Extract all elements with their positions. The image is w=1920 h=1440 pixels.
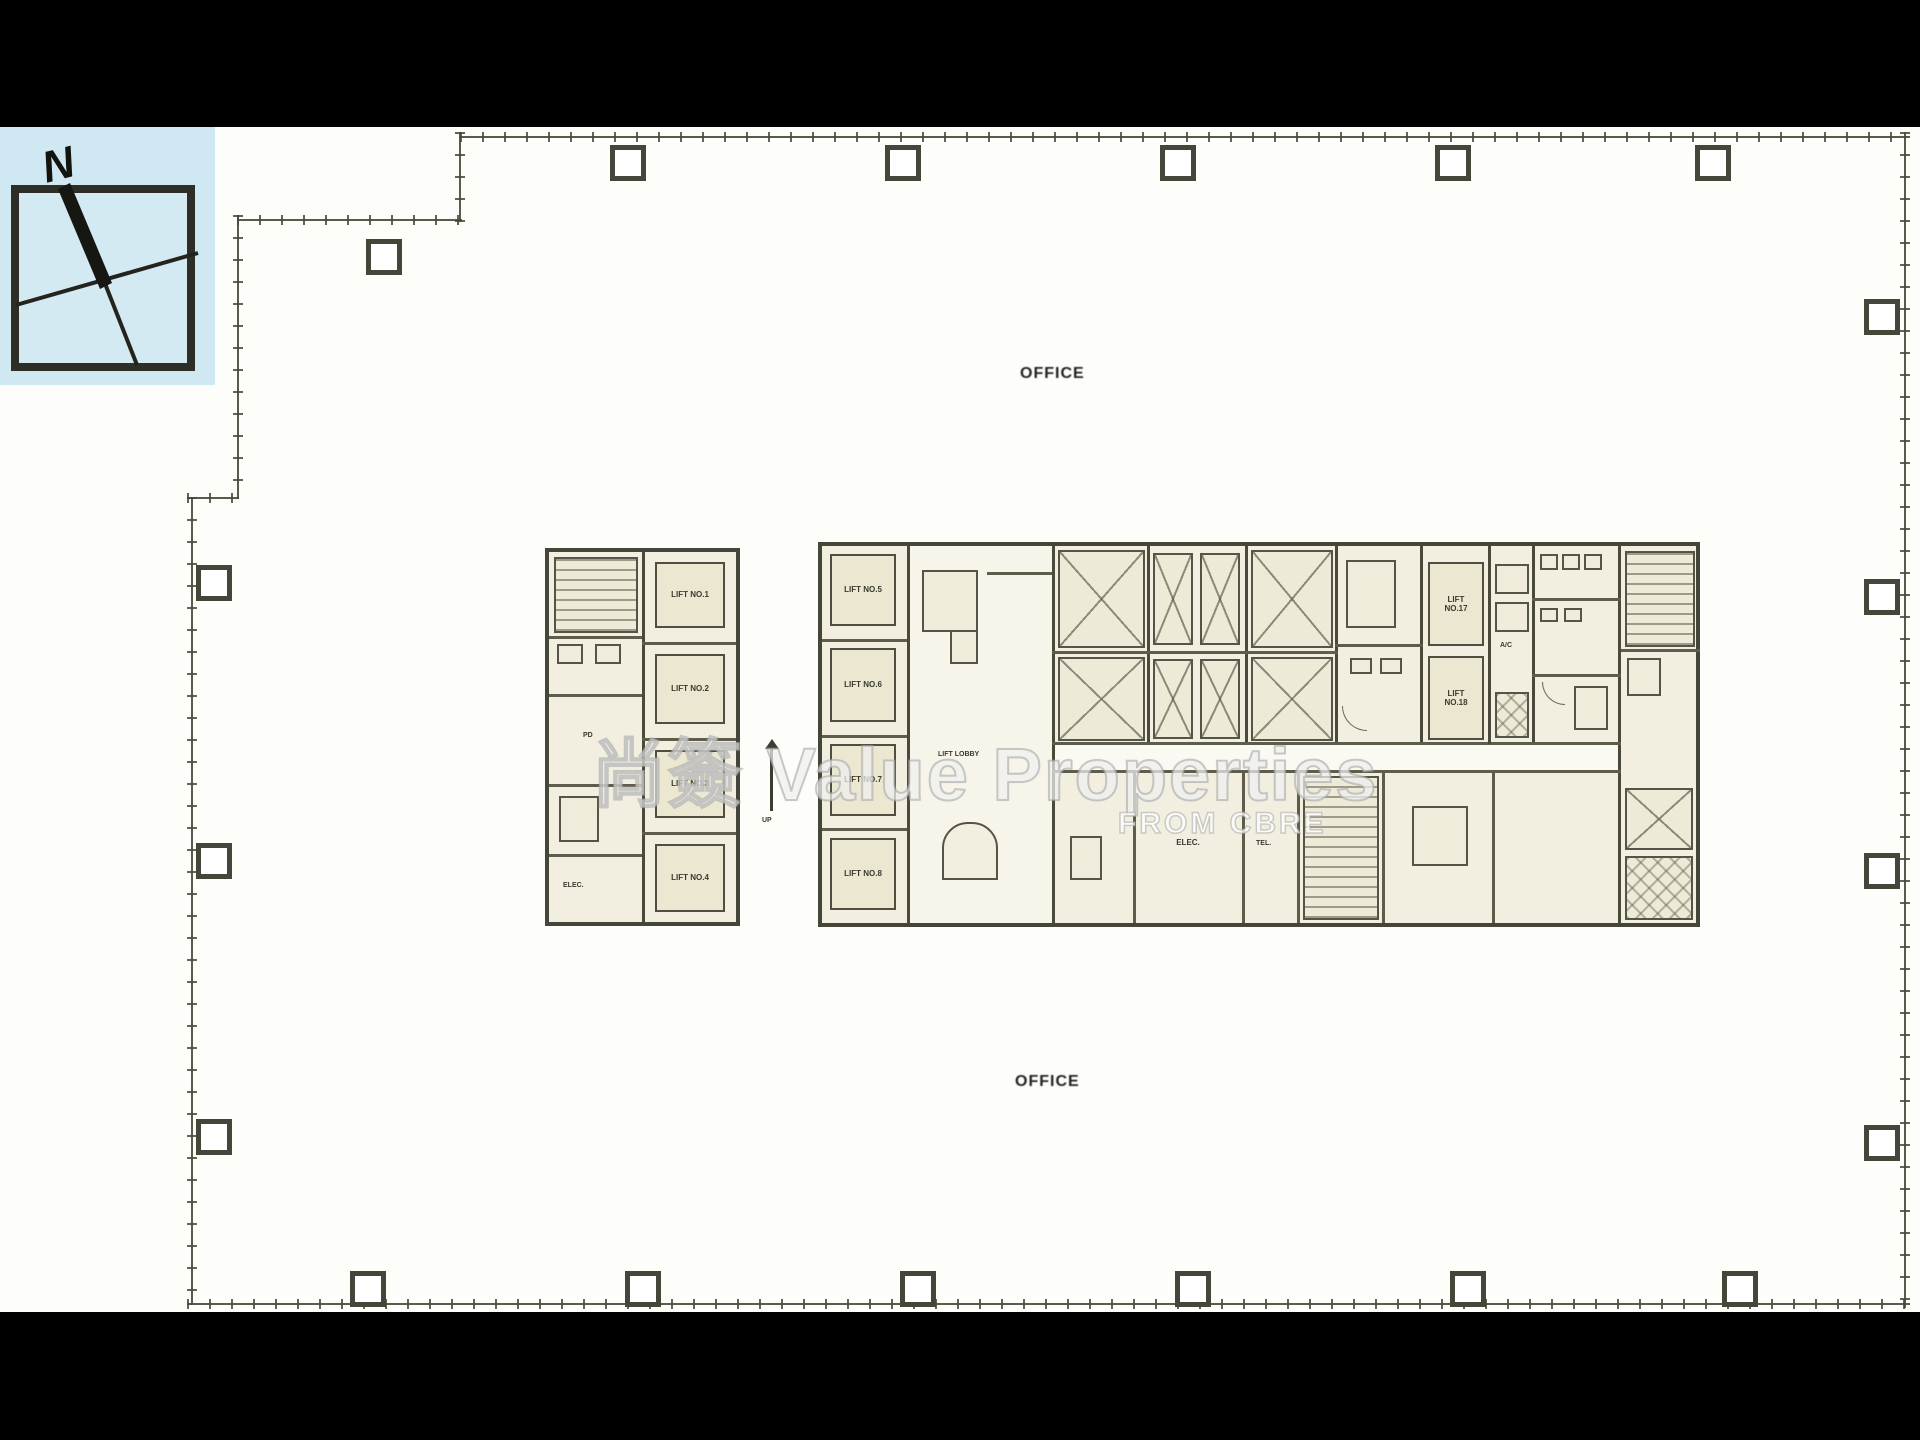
wall (1621, 649, 1700, 652)
wall (549, 636, 642, 639)
column (1175, 1271, 1211, 1307)
wall (987, 572, 1052, 575)
boundary-step-horizontal-2 (187, 493, 239, 503)
toilet-fixture (1584, 554, 1602, 570)
lift-label: LIFT NO.6 (844, 680, 882, 689)
column (196, 1119, 232, 1155)
column (1695, 145, 1731, 181)
boundary-left (187, 497, 197, 1305)
lift-label: LIFT NO.5 (844, 585, 882, 594)
wall (1618, 546, 1621, 923)
service-room (1070, 836, 1102, 880)
lift-label: LIFT NO.17 (1436, 595, 1476, 613)
watermark-title: 尚簽 Value Properties (592, 715, 1379, 822)
wall (822, 828, 907, 831)
wall (1245, 651, 1338, 654)
tel-room-label: TEL. (1256, 840, 1271, 848)
closet (942, 822, 998, 880)
column (350, 1271, 386, 1307)
elec-room-label: ELEC. (563, 882, 584, 890)
boundary-step-horizontal-1 (237, 215, 462, 225)
duct-shaft (1495, 692, 1529, 738)
boundary-bottom (187, 1299, 1910, 1309)
lift-shaft: LIFT NO.17 (1428, 562, 1484, 646)
duct-room (1495, 564, 1529, 594)
wall (642, 832, 736, 835)
wall (822, 639, 907, 642)
duct-shaft (1625, 788, 1693, 850)
wall (1052, 651, 1150, 654)
boundary-right (1900, 132, 1910, 1308)
toilet-fixture (595, 644, 621, 664)
toilet-stall (1540, 608, 1558, 622)
letterbox-bottom (0, 1312, 1920, 1440)
compass-north-arrow: N (0, 127, 215, 385)
column (625, 1271, 661, 1307)
screenshot-root: { "compass": { "north_label": "N" }, "wa… (0, 0, 1920, 1440)
ahu-box-step (950, 630, 978, 664)
column (1160, 145, 1196, 181)
toilet-room (1574, 686, 1608, 730)
wall (1532, 546, 1535, 744)
boundary-top (460, 132, 1910, 142)
toilet-fixture (557, 644, 583, 664)
wall (1382, 770, 1385, 923)
service-room (1412, 806, 1468, 866)
toilet-fixture (1350, 658, 1372, 674)
lift-label: LIFT NO.8 (844, 869, 882, 878)
wall (1147, 651, 1248, 654)
column (1864, 299, 1900, 335)
lift-label: LIFT NO.4 (671, 873, 709, 882)
wall (1532, 598, 1621, 601)
column (610, 145, 646, 181)
column (196, 565, 232, 601)
boundary-step-vertical-1 (455, 132, 465, 222)
ahu-box (922, 570, 978, 632)
lift-label: LIFT NO.1 (671, 590, 709, 599)
lift-shaft: LIFT NO.18 (1428, 656, 1484, 740)
service-shaft (1153, 553, 1193, 645)
lift-label: LIFT NO.2 (671, 684, 709, 693)
office-label-south: OFFICE (1015, 1073, 1080, 1091)
wall (642, 642, 736, 645)
lift-shaft: LIFT NO.6 (830, 648, 896, 722)
floor-plan-canvas: N OFFICE OFFICE PD ELEC. (0, 127, 1920, 1312)
service-room (1346, 560, 1396, 628)
column (1864, 579, 1900, 615)
wall (1488, 546, 1491, 744)
lift-shaft: LIFT NO.2 (655, 654, 725, 724)
lift-shaft: LIFT NO.5 (830, 554, 896, 626)
watermark-subtitle: FROM CBRE (1118, 807, 1327, 841)
door-arc (1542, 682, 1565, 705)
plant-room (1058, 550, 1145, 648)
toilet-fixture (1562, 554, 1580, 570)
lift-label: LIFT NO.18 (1436, 689, 1476, 707)
stair-room (554, 557, 638, 633)
toilet-fixture (1380, 658, 1402, 674)
column (1864, 1125, 1900, 1161)
service-shaft (1200, 553, 1240, 645)
office-label-north: OFFICE (1020, 365, 1085, 383)
ac-label: A/C (1500, 642, 1512, 650)
stair-room (1625, 551, 1695, 647)
stair-room (1625, 856, 1693, 920)
column (900, 1271, 936, 1307)
wall (1532, 674, 1621, 677)
lift-shaft: LIFT NO.4 (655, 844, 725, 912)
column (366, 239, 402, 275)
toilet-stall (1564, 608, 1582, 622)
toilet-fixture (1540, 554, 1558, 570)
wall (549, 854, 642, 857)
column (196, 843, 232, 879)
column (1450, 1271, 1486, 1307)
duct-room (1495, 602, 1529, 632)
column (885, 145, 921, 181)
letterbox-top (0, 0, 1920, 127)
wall (549, 694, 642, 697)
lift-shaft: LIFT NO.1 (655, 562, 725, 628)
column (1864, 853, 1900, 889)
plant-room (1251, 550, 1333, 648)
wall (1492, 770, 1495, 923)
wall (1335, 644, 1423, 647)
boundary-step-vertical-2 (233, 215, 243, 499)
lift-shaft: LIFT NO.8 (830, 838, 896, 910)
column (1722, 1271, 1758, 1307)
service-room (1627, 658, 1661, 696)
column (1435, 145, 1471, 181)
